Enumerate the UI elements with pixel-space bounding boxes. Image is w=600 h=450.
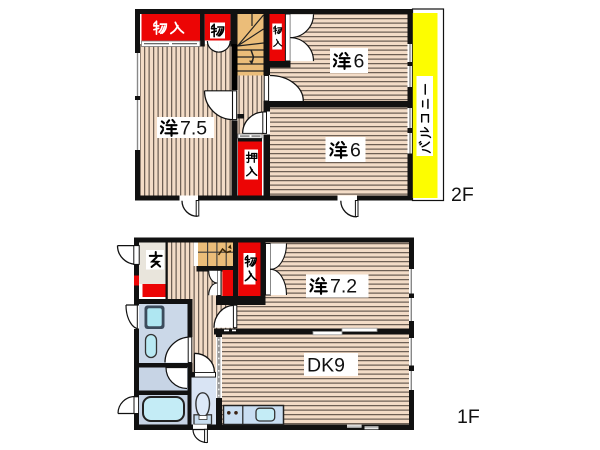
svg-text:6: 6 xyxy=(354,51,365,73)
svg-text:6: 6 xyxy=(350,140,361,162)
svg-text:7.2: 7.2 xyxy=(330,276,357,298)
svg-text:7.5: 7.5 xyxy=(180,118,207,140)
svg-text:1F: 1F xyxy=(457,406,480,428)
svg-text:2F: 2F xyxy=(451,184,474,206)
svg-text:DK9: DK9 xyxy=(307,355,345,377)
